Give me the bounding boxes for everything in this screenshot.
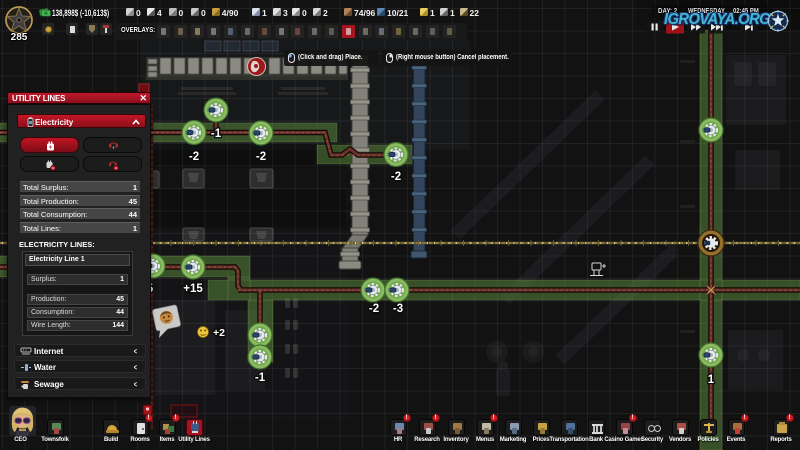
- svg-text:-3: -3: [393, 303, 403, 315]
- svg-text:-2: -2: [391, 171, 401, 183]
- svg-text:-2: -2: [369, 303, 379, 315]
- svg-text:1: 1: [708, 374, 715, 386]
- svg-text:-1: -1: [255, 372, 266, 384]
- svg-text:+15: +15: [183, 283, 203, 295]
- svg-text:-2: -2: [189, 151, 199, 163]
- svg-text:+2: +2: [213, 327, 225, 339]
- svg-text:-1: -1: [211, 128, 222, 140]
- svg-text:-2: -2: [256, 151, 266, 163]
